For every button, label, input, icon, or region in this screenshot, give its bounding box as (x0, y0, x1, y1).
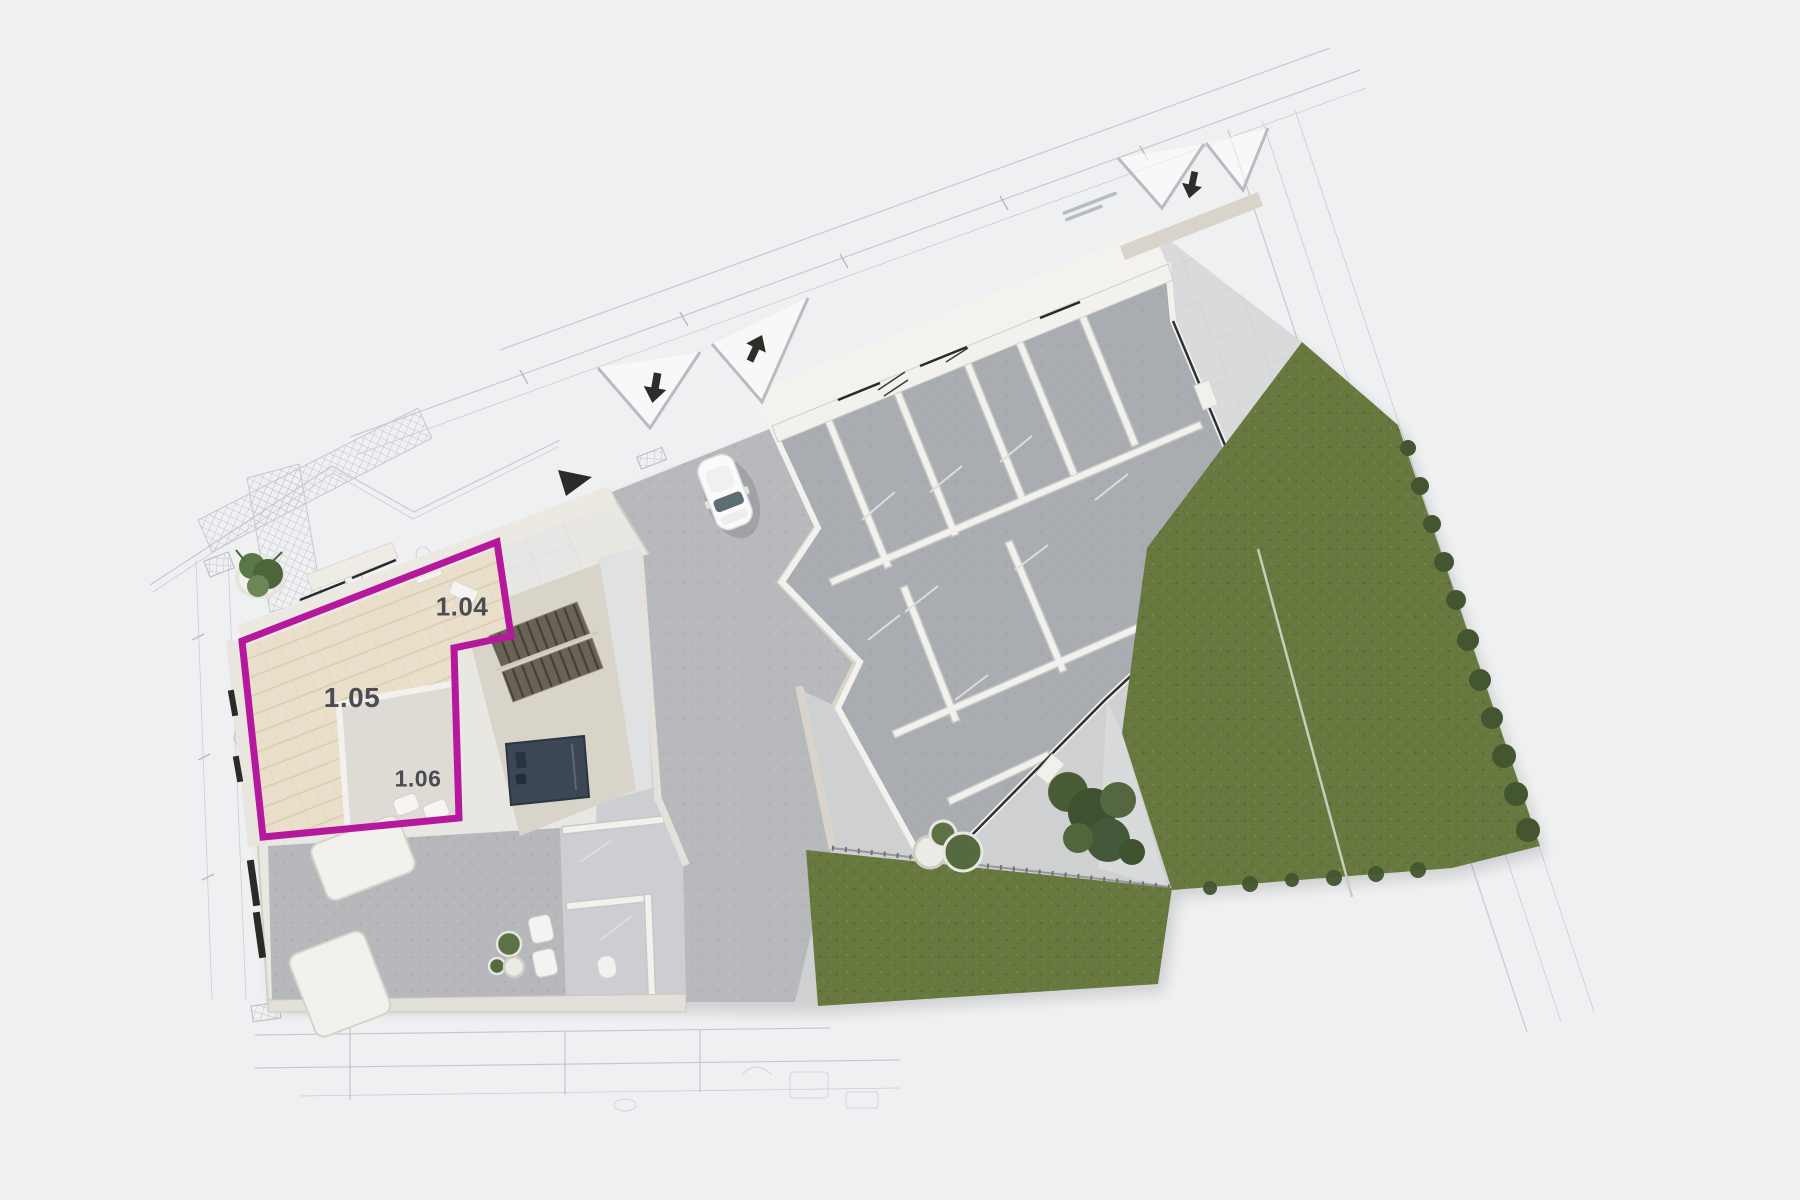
pedestrian-gate (1118, 128, 1268, 208)
potted-plant (236, 550, 283, 597)
room-label-1-06: 1.06 (395, 766, 442, 793)
gate-sill-wall (1120, 192, 1263, 260)
north-marker-icon (558, 470, 592, 496)
room-label-1-04: 1.04 (436, 592, 489, 623)
floorplan-canvas: 1.04 1.05 1.06 (0, 0, 1800, 1200)
room-label-1-05: 1.05 (324, 682, 381, 714)
siteplan-graphic (0, 0, 1800, 1200)
elevator (506, 736, 589, 805)
